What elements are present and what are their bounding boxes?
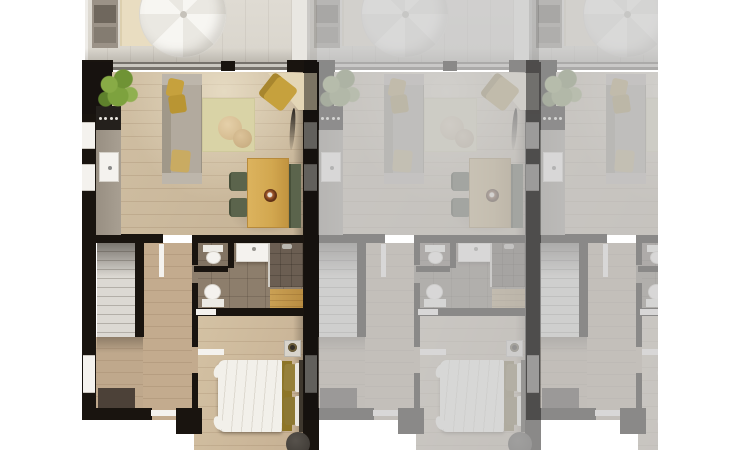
staircase-upper-shadow	[319, 243, 357, 277]
staircase-wall	[135, 243, 144, 337]
shower-area	[492, 243, 525, 287]
fruit-bowl	[264, 189, 277, 202]
barbecue-shelf	[316, 27, 338, 43]
understair-shadow	[319, 337, 365, 353]
faucet	[252, 247, 256, 251]
unit-1	[82, 0, 319, 450]
barbecue-grate	[538, 5, 560, 23]
bedroom-door	[420, 349, 446, 355]
toilet-cistern	[202, 299, 224, 307]
shower-glass	[490, 243, 492, 287]
unit-2	[304, 0, 541, 450]
front-door	[373, 410, 399, 416]
faucet	[330, 166, 334, 170]
understair-shadow	[541, 337, 587, 353]
front-door	[595, 410, 621, 416]
interior-wall	[526, 234, 607, 243]
barbecue-grate	[94, 5, 116, 23]
dining-chair	[229, 172, 249, 191]
toilet	[426, 284, 443, 300]
dining-bench	[289, 164, 301, 228]
bedroom-wall	[414, 373, 420, 410]
sliding-door-stile	[443, 61, 457, 71]
exterior-wall-corner	[620, 408, 646, 434]
hallway-door	[603, 244, 608, 277]
exterior-wall-corner	[398, 408, 424, 434]
window	[305, 355, 317, 393]
door-opening	[418, 309, 438, 315]
front-door	[151, 410, 177, 416]
window	[304, 164, 317, 191]
bedroom-wall	[636, 315, 642, 347]
doormat	[98, 388, 135, 408]
sofa-armrest	[384, 173, 424, 184]
window	[304, 122, 317, 149]
floor-plan-canvas	[0, 0, 730, 450]
window	[526, 164, 539, 191]
bathroom-wall	[194, 235, 317, 243]
parasol-pole	[180, 11, 187, 18]
sofa-cushion	[612, 94, 631, 114]
bathroom-wall	[416, 235, 539, 243]
kitchen-sink	[543, 152, 563, 182]
bedroom-wall	[414, 315, 420, 347]
bedroom-wall	[192, 315, 198, 347]
door-opening	[196, 309, 216, 315]
dining-chair	[451, 172, 471, 191]
lamp	[288, 343, 297, 352]
dining-chair	[229, 198, 249, 217]
kitchen-sink	[321, 152, 341, 182]
kitchen-sink	[99, 152, 119, 182]
sofa-cushion	[390, 94, 409, 114]
exterior-wall-bottom	[304, 408, 374, 420]
wc-partition-wall	[450, 243, 456, 268]
sofa-armrest	[162, 173, 202, 184]
interior-wall	[82, 234, 163, 243]
barbecue-shelf	[94, 27, 116, 43]
understair-shadow	[97, 337, 143, 353]
lamp	[510, 343, 519, 352]
toilet	[204, 284, 221, 300]
exterior-wall-bottom	[82, 408, 152, 420]
bathroom-wall	[636, 235, 642, 265]
dining-bench	[511, 164, 523, 228]
wc-partition-wall	[416, 266, 450, 272]
hallway-floor	[587, 243, 638, 420]
bathroom-wall	[192, 235, 198, 265]
bedroom-wall	[636, 373, 642, 410]
staircase-wall	[357, 243, 366, 337]
washbasin	[236, 243, 270, 262]
barbecue-shelf	[538, 27, 560, 43]
shower-head	[282, 244, 292, 249]
window	[526, 122, 539, 149]
bed-headboard	[521, 360, 525, 432]
crop-mask-right	[658, 0, 730, 450]
door-opening	[640, 309, 660, 315]
faucet	[474, 247, 478, 251]
terrace-shadow	[85, 48, 292, 62]
staircase-upper-shadow	[541, 243, 579, 277]
hallway-door	[381, 244, 386, 277]
toilet-cistern	[424, 299, 446, 307]
potted-plant	[318, 66, 362, 112]
window	[82, 122, 95, 149]
faucet	[108, 166, 112, 170]
bed-duvet	[440, 360, 504, 432]
washbasin	[458, 243, 492, 262]
doormat	[542, 388, 579, 408]
bedroom-door	[198, 349, 224, 355]
bed-headboard	[299, 360, 303, 432]
hallway-floor	[365, 243, 416, 420]
parasol-pole	[402, 11, 409, 18]
toilet	[206, 251, 221, 264]
window	[83, 355, 95, 393]
shower-head	[504, 244, 514, 249]
interior-wall	[304, 234, 385, 243]
bed-duvet	[218, 360, 282, 432]
hallway-door	[159, 244, 164, 277]
sliding-door-stile	[221, 61, 235, 71]
potted-plant	[96, 66, 140, 112]
barbecue-grate	[316, 5, 338, 23]
terrace-shadow	[307, 48, 514, 62]
bedroom-wall	[192, 373, 198, 410]
sofa-cushion	[392, 149, 413, 173]
exterior-wall-bottom	[526, 408, 596, 420]
faucet	[552, 166, 556, 170]
parasol-pole	[624, 11, 631, 18]
staircase-wall	[579, 243, 588, 337]
fruit-bowl	[486, 189, 499, 202]
shower-glass	[268, 243, 270, 287]
pouf	[455, 129, 474, 148]
wc-partition-wall	[228, 243, 234, 268]
sofa-armrest	[606, 173, 646, 184]
sofa-cushion	[168, 94, 187, 114]
window	[527, 355, 539, 393]
sofa-cushion	[614, 149, 635, 173]
potted-plant	[540, 66, 584, 112]
bathroom-wall	[414, 235, 420, 265]
window	[82, 164, 95, 191]
wc-partition-wall	[194, 266, 228, 272]
toilet	[428, 251, 443, 264]
dining-chair	[451, 198, 471, 217]
hallway-floor	[143, 243, 194, 420]
exterior-wall-corner	[176, 408, 202, 434]
doormat	[320, 388, 357, 408]
staircase-upper-shadow	[97, 243, 135, 277]
pouf	[233, 129, 252, 148]
sofa-cushion	[170, 149, 191, 173]
shower-area	[270, 243, 303, 287]
